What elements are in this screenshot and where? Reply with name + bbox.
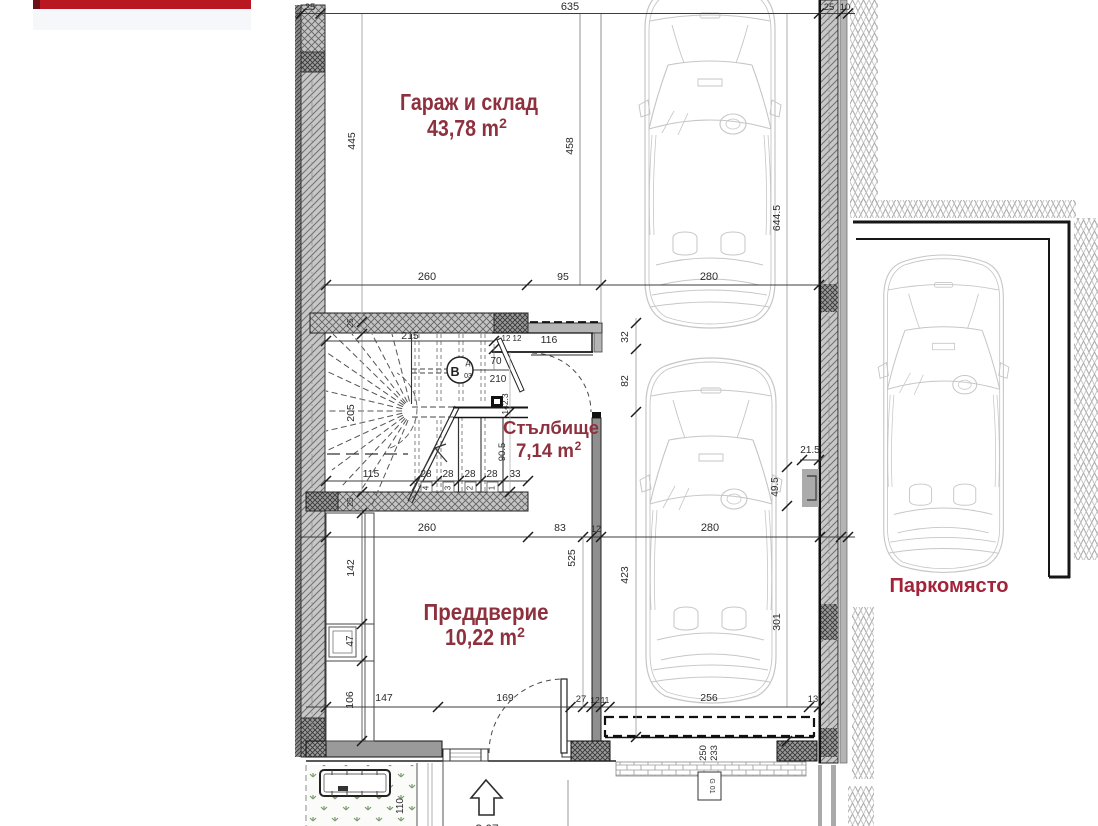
svg-text:25: 25 (345, 318, 355, 328)
svg-text:2: 2 (575, 439, 582, 453)
svg-text:12: 12 (591, 524, 601, 534)
svg-text:43,78 m: 43,78 m (427, 115, 499, 141)
svg-text:д: д (466, 358, 471, 367)
svg-text:70: 70 (490, 356, 502, 367)
svg-text:28: 28 (420, 469, 432, 480)
svg-text:28: 28 (486, 469, 498, 480)
svg-text:03: 03 (464, 373, 472, 380)
svg-text:21.5: 21.5 (800, 445, 820, 456)
svg-text:116: 116 (541, 334, 558, 346)
svg-text:115: 115 (363, 468, 380, 480)
svg-text:423: 423 (619, 566, 631, 584)
svg-text:G 01: G 01 (708, 778, 715, 793)
svg-text:12: 12 (502, 334, 511, 343)
svg-text:4: 4 (422, 485, 431, 490)
svg-text:10: 10 (840, 2, 851, 13)
svg-text:3: 3 (444, 485, 453, 490)
svg-text:169: 169 (496, 692, 514, 704)
svg-text:28: 28 (464, 469, 476, 480)
svg-text:301: 301 (771, 613, 783, 631)
svg-text:205: 205 (345, 404, 357, 422)
svg-text:13: 13 (808, 694, 819, 705)
svg-text:7,14 m: 7,14 m (516, 441, 574, 462)
svg-text:142: 142 (345, 559, 357, 577)
svg-text:90.5: 90.5 (497, 443, 508, 462)
svg-text:Преддверие: Преддверие (424, 599, 549, 625)
svg-text:147: 147 (375, 692, 393, 704)
svg-text:Стълбище: Стълбище (503, 418, 599, 438)
svg-text:10,22 m: 10,22 m (445, 624, 517, 650)
svg-text:83: 83 (554, 522, 566, 534)
svg-text:644.5: 644.5 (771, 205, 783, 231)
svg-text:В: В (450, 365, 459, 379)
svg-text:233: 233 (709, 745, 720, 761)
svg-text:142.3: 142.3 (500, 393, 510, 415)
svg-text:280: 280 (701, 522, 719, 534)
svg-text:1: 1 (488, 485, 497, 490)
svg-text:95: 95 (557, 271, 569, 283)
svg-text:25: 25 (345, 497, 355, 507)
svg-text:2: 2 (499, 115, 507, 131)
svg-text:Паркомясто: Паркомясто (890, 575, 1009, 597)
svg-text:256: 256 (700, 692, 718, 704)
svg-text:27: 27 (576, 694, 587, 705)
svg-text:12: 12 (513, 334, 522, 343)
svg-text:3,07: 3,07 (475, 822, 499, 826)
svg-text:Гараж и склад: Гараж и склад (400, 89, 538, 115)
svg-text:210: 210 (490, 374, 507, 385)
svg-text:25: 25 (824, 2, 835, 13)
svg-text:28: 28 (442, 469, 454, 480)
svg-text:260: 260 (418, 271, 436, 283)
svg-text:215: 215 (401, 330, 419, 342)
svg-text:47: 47 (345, 635, 356, 647)
svg-text:280: 280 (700, 271, 718, 283)
svg-text:11: 11 (601, 695, 610, 705)
svg-text:250: 250 (698, 745, 709, 761)
svg-text:82: 82 (619, 375, 631, 387)
svg-text:458: 458 (564, 137, 576, 155)
svg-text:12: 12 (590, 695, 600, 705)
svg-text:106: 106 (344, 691, 356, 709)
svg-text:445: 445 (346, 132, 358, 150)
svg-text:260: 260 (418, 522, 436, 534)
svg-text:25: 25 (305, 2, 316, 13)
svg-text:525: 525 (566, 549, 578, 567)
svg-text:110: 110 (395, 798, 406, 814)
svg-text:2: 2 (517, 624, 525, 640)
svg-text:32: 32 (619, 331, 631, 343)
svg-text:33: 33 (509, 469, 521, 480)
svg-text:635: 635 (561, 1, 579, 13)
svg-text:49.5: 49.5 (770, 477, 781, 497)
svg-text:2: 2 (466, 485, 475, 490)
